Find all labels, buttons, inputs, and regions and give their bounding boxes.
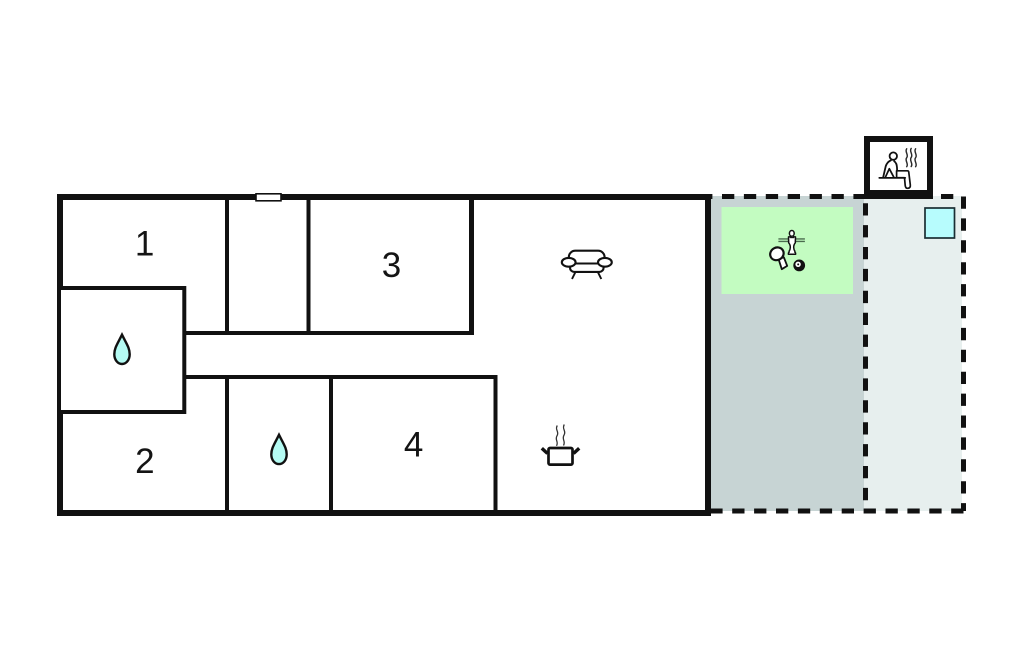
svg-text:3: 3 bbox=[382, 246, 401, 285]
svg-text:1: 1 bbox=[135, 225, 154, 264]
svg-text:2: 2 bbox=[135, 442, 154, 481]
svg-text:4: 4 bbox=[404, 425, 423, 464]
